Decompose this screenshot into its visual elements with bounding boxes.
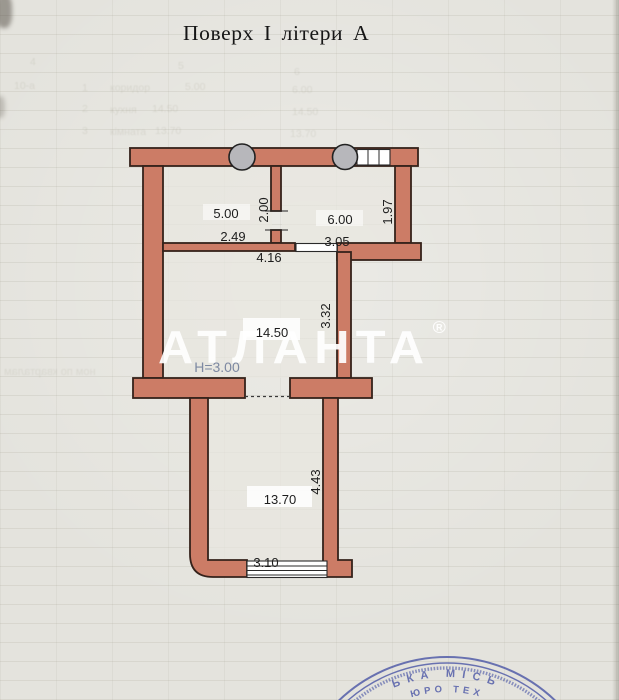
- dim-room6-width: 3.05: [324, 234, 349, 249]
- dim-room5-depth: 2.00: [256, 197, 271, 222]
- dim-room6-depth: 1.97: [380, 199, 395, 224]
- dim-room5-width: 2.49: [220, 229, 245, 244]
- dim-hall-width: 4.16: [256, 250, 281, 265]
- dim-hall-area: 14.50: [256, 325, 289, 340]
- round-stamp: ЬКА МІСЬ ЮРО ТЕХ: [325, 650, 575, 700]
- dim-hall-depth: 3.32: [318, 303, 333, 328]
- stamp-inner-text: ЮРО ТЕХ: [409, 684, 484, 700]
- dimension-labels: 5.00 2.49 2.00 6.00 3.05 1.97 4.16 14.50…: [0, 0, 619, 700]
- scan-edge-shadow: [612, 0, 619, 700]
- dim-room6-area: 6.00: [327, 212, 352, 227]
- dim-room5-area: 5.00: [213, 206, 238, 221]
- dim-room13-area: 13.70: [264, 492, 297, 507]
- dim-ceiling-height: H=3.00: [194, 359, 240, 375]
- dim-room13-window-width: 3.10: [253, 555, 278, 570]
- dim-room13-depth: 4.43: [308, 469, 323, 494]
- svg-text:ЮРО ТЕХ: ЮРО ТЕХ: [409, 684, 484, 700]
- scanned-page: 4 5 6 10-а 1 коридор 5.00 6.00 2 кухня 1…: [0, 0, 619, 700]
